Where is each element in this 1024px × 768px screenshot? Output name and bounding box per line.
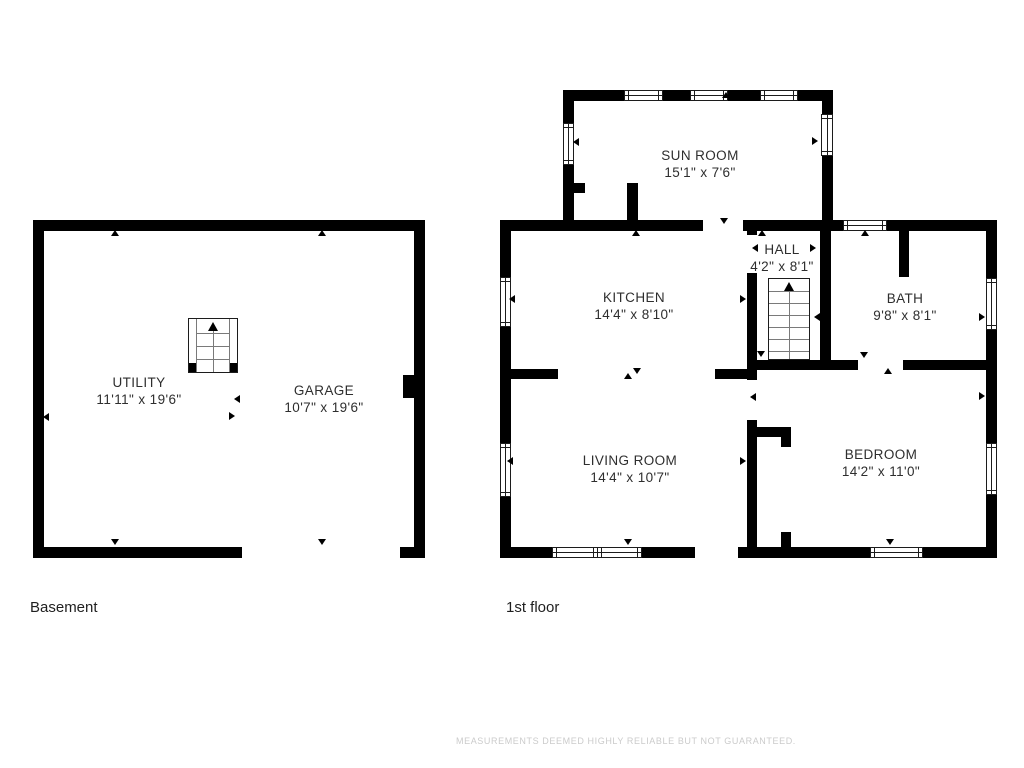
floorplan-canvas: BasementUTILITY11'11" x 19'6"GARAGE10'7"… xyxy=(0,0,1024,768)
room-name: LIVING ROOM xyxy=(583,452,677,469)
dimension-tick xyxy=(884,368,892,374)
wall-segment xyxy=(511,369,558,379)
window-symbol xyxy=(624,90,663,101)
window-symbol xyxy=(870,547,923,558)
room-label: BATH9'8" x 8'1" xyxy=(873,290,936,324)
room-name: SUN ROOM xyxy=(661,147,738,164)
room-label: HALL4'2" x 8'1" xyxy=(750,241,813,275)
room-label: UTILITY11'11" x 19'6" xyxy=(96,374,181,408)
room-dimensions: 14'4" x 10'7" xyxy=(583,469,677,486)
dimension-tick xyxy=(860,352,868,358)
dimension-tick xyxy=(43,413,49,421)
dimension-tick xyxy=(509,295,515,303)
room-label: GARAGE10'7" x 19'6" xyxy=(284,382,363,416)
staircase xyxy=(188,318,238,373)
wall-segment xyxy=(627,183,638,231)
wall-segment xyxy=(33,220,425,231)
dimension-tick xyxy=(111,539,119,545)
room-name: HALL xyxy=(750,241,813,258)
window-symbol xyxy=(821,114,833,156)
room-dimensions: 14'2" x 11'0" xyxy=(842,463,920,480)
room-name: BEDROOM xyxy=(842,446,920,463)
door-opening xyxy=(781,447,791,532)
dimension-tick xyxy=(111,230,119,236)
room-label: KITCHEN14'4" x 8'10" xyxy=(594,289,673,323)
door-opening xyxy=(858,360,903,370)
floor-caption-first-floor: 1st floor xyxy=(506,599,559,616)
door-opening xyxy=(695,547,738,558)
dimension-tick xyxy=(740,457,746,465)
room-label: LIVING ROOM14'4" x 10'7" xyxy=(583,452,677,486)
room-dimensions: 11'11" x 19'6" xyxy=(96,391,181,408)
dimension-tick xyxy=(632,230,640,236)
room-name: BATH xyxy=(873,290,936,307)
dimension-tick xyxy=(722,92,730,98)
wall-segment xyxy=(986,220,997,558)
room-dimensions: 10'7" x 19'6" xyxy=(284,399,363,416)
door-opening xyxy=(585,183,627,193)
dimension-tick xyxy=(234,395,240,403)
dimension-tick xyxy=(750,393,756,401)
stairs-up-arrow xyxy=(784,282,794,291)
room-dimensions: 4'2" x 8'1" xyxy=(750,258,813,275)
room-name: GARAGE xyxy=(284,382,363,399)
stairs-up-arrow xyxy=(208,322,218,331)
wall-segment xyxy=(500,220,511,558)
room-name: KITCHEN xyxy=(594,289,673,306)
staircase xyxy=(768,278,810,360)
window-symbol xyxy=(552,547,598,558)
window-symbol xyxy=(597,547,642,558)
dimension-tick xyxy=(507,457,513,465)
dimension-tick xyxy=(229,412,235,420)
door-jamb-block xyxy=(403,375,417,398)
dimension-tick xyxy=(740,295,746,303)
wall-segment xyxy=(33,220,44,558)
dimension-tick xyxy=(861,230,869,236)
room-dimensions: 14'4" x 8'10" xyxy=(594,306,673,323)
dimension-tick xyxy=(757,351,765,357)
room-dimensions: 15'1" x 7'6" xyxy=(661,164,738,181)
wall-segment xyxy=(899,220,909,277)
dimension-tick xyxy=(979,392,985,400)
dimension-tick xyxy=(814,313,820,321)
window-symbol xyxy=(986,443,997,495)
dimension-tick xyxy=(624,373,632,379)
dimension-tick xyxy=(318,539,326,545)
wall-segment xyxy=(822,90,833,231)
floor-caption-basement: Basement xyxy=(30,599,98,616)
window-symbol xyxy=(500,443,511,497)
dimension-tick xyxy=(573,138,579,146)
dimension-tick xyxy=(318,230,326,236)
window-symbol xyxy=(986,278,997,330)
door-opening xyxy=(242,547,400,558)
room-name: UTILITY xyxy=(96,374,181,391)
window-symbol xyxy=(760,90,798,101)
disclaimer-text: MEASUREMENTS DEEMED HIGHLY RELIABLE BUT … xyxy=(456,736,796,746)
dimension-tick xyxy=(720,218,728,224)
dimension-tick xyxy=(624,539,632,545)
dimension-tick xyxy=(979,313,985,321)
dimension-tick xyxy=(758,230,766,236)
wall-segment xyxy=(820,220,831,370)
dimension-tick xyxy=(886,539,894,545)
room-label: BEDROOM14'2" x 11'0" xyxy=(842,446,920,480)
room-dimensions: 9'8" x 8'1" xyxy=(873,307,936,324)
dimension-tick xyxy=(812,137,818,145)
room-label: SUN ROOM15'1" x 7'6" xyxy=(661,147,738,181)
dimension-tick xyxy=(633,368,641,374)
